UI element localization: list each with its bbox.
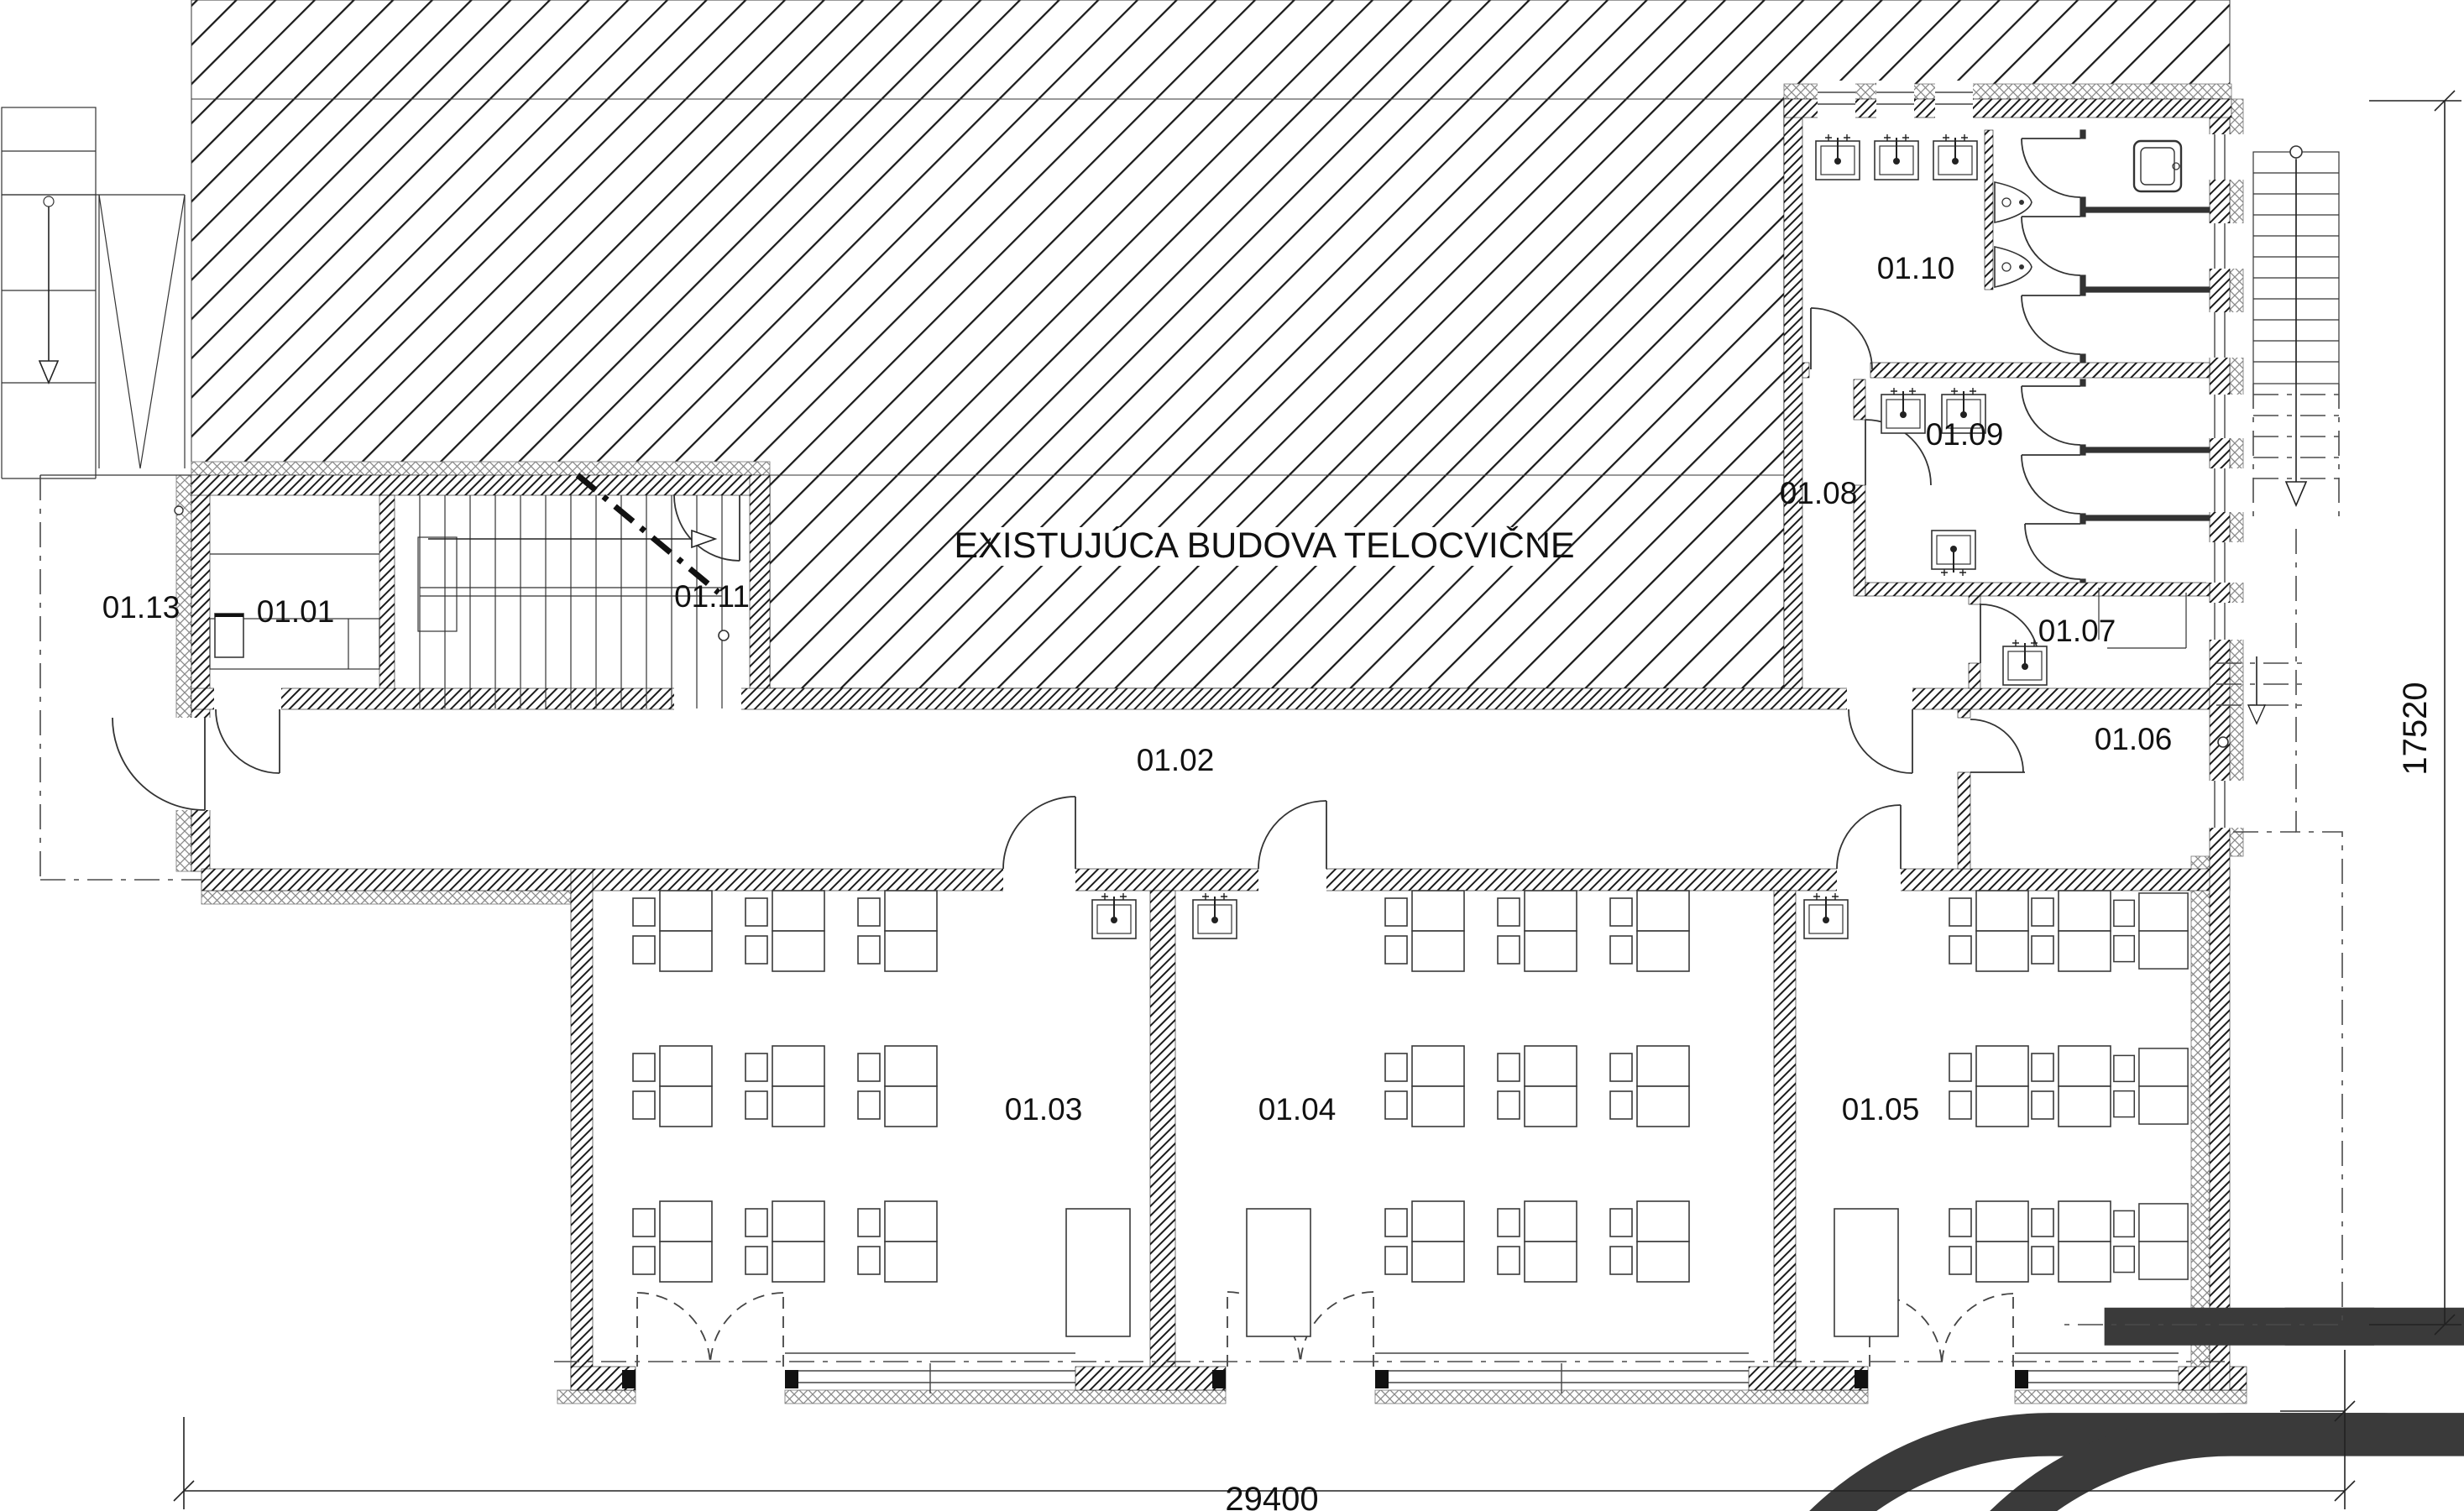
room-0103-door-swing-icon — [1003, 797, 1075, 869]
wall-stair-east — [750, 475, 770, 708]
desk-group-icon — [1498, 1201, 1577, 1282]
wall-corridor-south — [201, 869, 2230, 891]
wall-top-leftblock — [191, 475, 770, 495]
ramp-arrow-icon — [2, 107, 185, 478]
desk-group-icon — [858, 1046, 937, 1127]
room-0104-door-swing-icon — [1258, 801, 1326, 869]
existing-building-label: EXISTUJÚCA BUDOVA TELOCVIČNE — [954, 525, 1574, 566]
desk-group-icon — [2114, 1204, 2188, 1279]
wall-partition-0104-0105 — [1774, 891, 1796, 1390]
room-label-0111: 01.11 — [674, 579, 750, 614]
direction-arrow-icon — [428, 531, 715, 547]
vestibule-door-swing-icon — [1849, 709, 1912, 773]
desk-group-icon — [1949, 891, 2028, 971]
wall-0101-stair — [379, 495, 395, 708]
wall-0106-west — [1958, 772, 1970, 869]
room-label-0109: 01.09 — [1926, 417, 2004, 452]
room-label-0105: 01.05 — [1842, 1092, 1920, 1127]
room-label-0110: 01.10 — [1877, 251, 1955, 285]
desk-group-icon — [2032, 1201, 2111, 1282]
desk-group-icon — [1610, 1046, 1689, 1127]
desk-group-icon — [1949, 1046, 2028, 1127]
sink-icon — [1193, 893, 1237, 938]
dimension-width-label: 29400 — [1225, 1481, 1318, 1511]
room-0101-door-swing-icon — [216, 709, 280, 773]
wall-south-seg3 — [1749, 1367, 1868, 1390]
wall-urinal-stub — [1985, 130, 1993, 290]
teacher-desk-icon — [1066, 1209, 1130, 1336]
desk-group-icon — [745, 891, 824, 971]
desk-group-icon — [2114, 893, 2188, 969]
wall-west-leftblock — [191, 475, 210, 871]
wall-sanitary-west — [1784, 99, 1802, 688]
desk-group-icon — [1385, 1046, 1464, 1127]
room-0103-double-door-swing-icon — [622, 1293, 798, 1388]
room-label-0103: 01.03 — [1005, 1092, 1083, 1127]
desk-group-icon — [1610, 1201, 1689, 1282]
dimension-height-label: 17520 — [2397, 682, 2434, 775]
desk-group-icon — [858, 1201, 937, 1282]
sink-icon — [1881, 388, 1925, 433]
desk-group-icon — [1385, 1201, 1464, 1282]
desk-group-icon — [633, 1201, 712, 1282]
desk-group-icon — [745, 1046, 824, 1127]
room-0105-door-swing-icon — [1837, 805, 1901, 869]
sink-icon — [1875, 134, 1918, 180]
room-label-0101: 01.01 — [257, 594, 335, 629]
wall-0107-west — [1969, 663, 1980, 688]
urinal-icon — [1995, 247, 2032, 287]
desk-group-icon — [633, 1046, 712, 1127]
room-label-0104: 01.04 — [1258, 1092, 1337, 1127]
desk-group-icon — [2032, 1046, 2111, 1127]
floor-plan-drawing: EXISTUJÚCA BUDOVA TELOCVIČNE — [0, 0, 2464, 1511]
desk-group-icon — [1610, 891, 1689, 971]
mop-sink-icon — [2134, 141, 2181, 191]
room-label-0106: 01.06 — [2095, 722, 2173, 756]
wall-0108-east-a — [1854, 379, 1865, 420]
teacher-desk-icon — [1247, 1209, 1310, 1336]
stall-partitions-0109 — [2022, 379, 2210, 583]
dimension-right: 17520 — [2369, 91, 2461, 1335]
wall-0110-south — [1870, 363, 2210, 378]
room-0110-door-swing-icon — [1811, 308, 1872, 369]
desk-group-icon — [633, 891, 712, 971]
desk-group-icon — [1498, 1046, 1577, 1127]
desk-group-icon — [1385, 891, 1464, 971]
room-label-0102: 01.02 — [1137, 743, 1215, 777]
sink-icon — [1816, 134, 1860, 180]
desk-group-icon — [1498, 891, 1577, 971]
desk-group-icon — [1949, 1201, 2028, 1282]
room-label-0108: 01.08 — [1780, 476, 1858, 510]
room-label-0113: 01.13 — [102, 590, 180, 625]
room-0106-door-swing-icon — [1970, 719, 2025, 772]
wall-south-seg2 — [1075, 1367, 1226, 1390]
floor-plan-svg: EXISTUJÚCA BUDOVA TELOCVIČNE — [0, 0, 2464, 1511]
desk-group-icon — [858, 891, 937, 971]
sink-icon — [1092, 893, 1136, 938]
desk-group-icon — [2032, 891, 2111, 971]
sink-icon — [1932, 531, 1975, 576]
south-windows — [785, 1353, 2179, 1393]
desk-group-icon — [745, 1201, 824, 1282]
wall-classroom-west — [571, 869, 593, 1390]
classroom-0104-desks — [1247, 891, 2464, 1511]
room-label-0107: 01.07 — [2038, 614, 2116, 648]
wall-0109-south — [1865, 583, 2210, 596]
teacher-desk-icon — [1834, 1209, 1898, 1336]
stair-door-swing-icon — [674, 495, 740, 561]
desk-group-icon — [2114, 1048, 2188, 1124]
sink-icon — [1933, 134, 1977, 180]
sink-icon — [1804, 893, 1848, 938]
wall-partition-0103-0104 — [1150, 891, 1175, 1390]
